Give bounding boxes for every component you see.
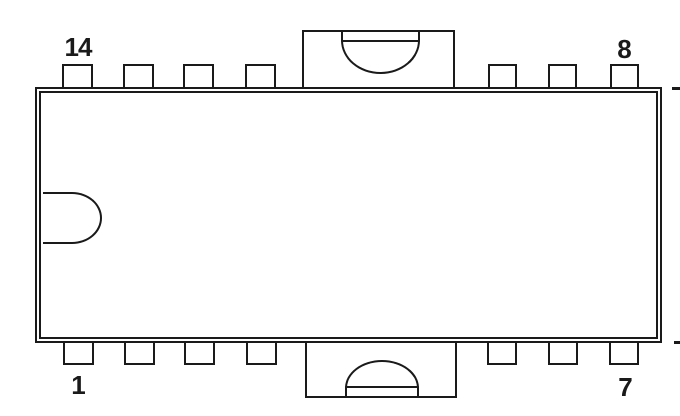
package-body-inner-outline bbox=[39, 91, 658, 339]
bottom-tab-cutout-left-edge bbox=[345, 387, 347, 398]
top-mounting-tab bbox=[302, 30, 455, 92]
pin-label-1: 1 bbox=[58, 372, 98, 398]
pin-label-7: 7 bbox=[605, 374, 645, 400]
top-tab-cutout-left-edge bbox=[341, 32, 343, 41]
package-body bbox=[35, 87, 662, 343]
pin1-index-notch bbox=[43, 192, 102, 244]
right-edge-tick-bottom bbox=[674, 341, 680, 344]
bottom-tab-semicircle-cutout bbox=[345, 360, 419, 388]
top-tab-cutout-right-edge bbox=[418, 32, 420, 41]
top-tab-semicircle-cutout bbox=[341, 40, 420, 74]
bottom-tab-cutout-right-edge bbox=[417, 387, 419, 398]
pin-label-14: 14 bbox=[58, 34, 98, 60]
bottom-mounting-tab bbox=[305, 337, 457, 398]
dip-package-diagram: 14 8 1 7 bbox=[0, 0, 680, 416]
right-edge-tick-top bbox=[672, 87, 680, 90]
pin-label-8: 8 bbox=[604, 36, 644, 62]
